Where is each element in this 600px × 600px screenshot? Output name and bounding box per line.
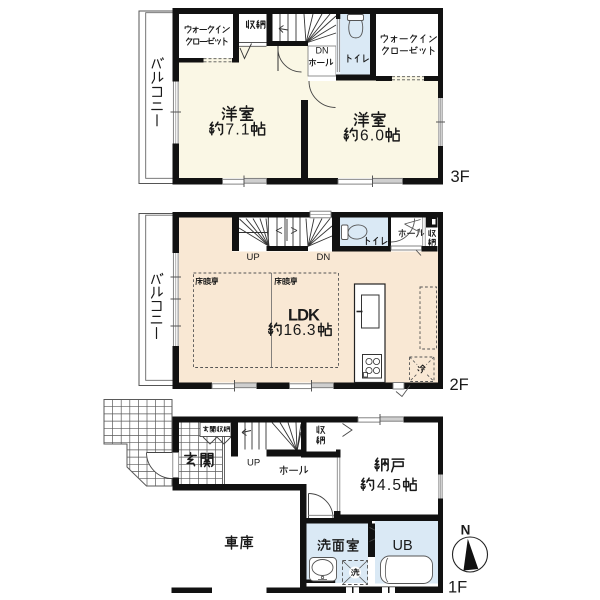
svg-text:3F: 3F bbox=[451, 168, 470, 186]
svg-text:2F: 2F bbox=[450, 376, 469, 394]
svg-text:UB: UB bbox=[393, 538, 413, 554]
svg-text:N: N bbox=[461, 523, 471, 538]
svg-text:DN: DN bbox=[317, 252, 331, 263]
svg-text:4.5: 4.5 bbox=[377, 477, 402, 494]
svg-text:6.0: 6.0 bbox=[360, 128, 385, 145]
svg-text:7.1: 7.1 bbox=[226, 122, 251, 139]
svg-text:UP: UP bbox=[247, 458, 260, 469]
svg-text:UP: UP bbox=[247, 252, 260, 263]
svg-text:DN: DN bbox=[316, 46, 329, 56]
svg-text:16.3: 16.3 bbox=[284, 322, 317, 339]
svg-text:1F: 1F bbox=[448, 579, 467, 597]
